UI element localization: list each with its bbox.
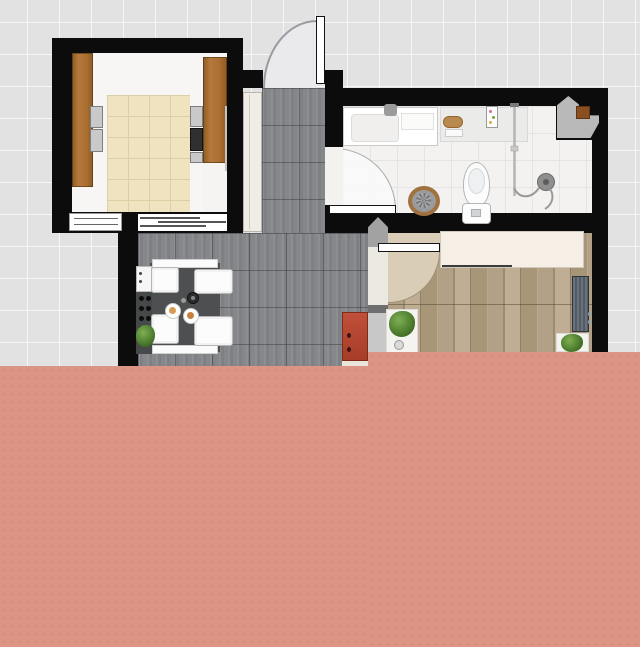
soap-dish-icon — [445, 129, 463, 137]
wall-kitchen-west — [52, 38, 72, 233]
chair-top-right[interactable] — [194, 269, 233, 294]
wall-dining-west — [118, 233, 138, 366]
table-deco-icon — [181, 298, 186, 303]
towel-roll-icon — [443, 116, 463, 128]
radiator-valve-icon — [588, 320, 592, 324]
kitchen-counter-end — [203, 163, 227, 212]
table-end-south — [152, 345, 218, 354]
appliance-panel-top[interactable] — [190, 106, 203, 127]
window-kitchen-hatch — [138, 214, 227, 231]
laundry-basket-icon[interactable] — [408, 186, 440, 216]
bottle-rack-top[interactable] — [136, 266, 152, 292]
red-cabinet[interactable] — [342, 312, 368, 361]
window-kitchen-left — [69, 213, 122, 231]
floor-plan-canvas — [0, 0, 640, 647]
bathroom-doorway — [325, 147, 343, 205]
wardrobe-edge — [442, 265, 512, 267]
kitchen-floor — [107, 95, 190, 213]
plate-icon — [165, 303, 181, 319]
entry-door-swing — [263, 20, 317, 88]
salmon-overlay-right — [368, 352, 640, 647]
chair-bottom-right[interactable] — [194, 316, 233, 346]
toilet-tank — [462, 203, 491, 224]
kitchen-cabinet-right[interactable] — [203, 57, 227, 163]
radiator-valve-icon — [588, 312, 592, 316]
appliance-panel-bottom[interactable] — [190, 152, 203, 163]
entry-door-leaf[interactable] — [316, 16, 325, 84]
bedroom-doorway — [368, 247, 388, 305]
radiator[interactable] — [572, 276, 589, 332]
chair-top-left[interactable] — [151, 267, 179, 293]
dishwasher-icon[interactable] — [90, 129, 103, 152]
wardrobe[interactable] — [440, 231, 584, 268]
wall-kitchen-north — [52, 38, 243, 53]
plank-seam — [388, 304, 592, 305]
plate-icon — [183, 308, 199, 324]
oven-icon[interactable] — [90, 106, 103, 128]
hallway-floor — [262, 88, 325, 233]
stove-icon[interactable] — [190, 128, 203, 151]
floor-lamp-icon[interactable] — [394, 340, 404, 350]
bathroom-door-leaf[interactable] — [329, 205, 396, 214]
hall-closet[interactable] — [243, 92, 262, 232]
door-post-south — [368, 305, 388, 352]
black-plate-icon — [187, 292, 199, 304]
toilet-bowl[interactable] — [463, 162, 490, 207]
flower-frame-icon — [486, 106, 498, 128]
wall-entry — [243, 70, 263, 88]
faucet-icon — [384, 104, 397, 116]
corner-wood-box — [576, 106, 590, 119]
shower-icon[interactable] — [504, 100, 564, 212]
salmon-overlay-left — [0, 366, 368, 647]
bedroom-door-leaf[interactable] — [378, 243, 440, 252]
wall-kitchen-east — [227, 38, 243, 233]
